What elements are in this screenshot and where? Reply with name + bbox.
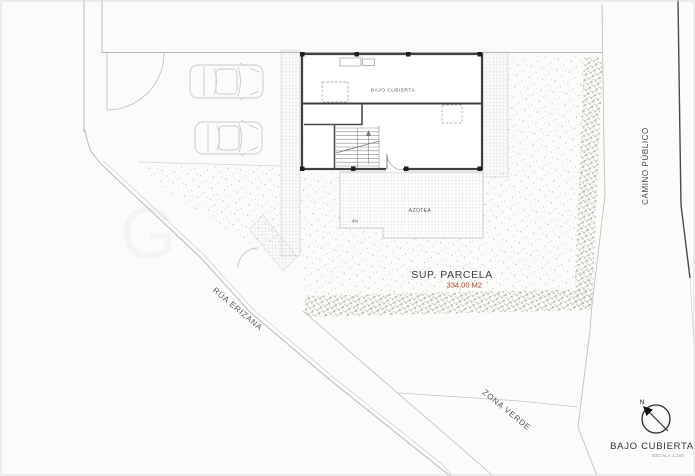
building: [300, 52, 482, 172]
terrace-deck: [340, 172, 483, 238]
site-plan-canvas: G: [0, 0, 695, 476]
street-label-camino-publico: CAMINO PÚBLICO: [641, 127, 650, 205]
slope-label: 4%: [352, 219, 358, 224]
compass-north-label: N: [640, 399, 645, 406]
walkway-west-strip: [281, 50, 300, 256]
drawing-title: BAJO CUBIERTA: [610, 441, 694, 452]
watermark: G: [120, 194, 176, 274]
terrace: [340, 172, 483, 238]
walkway-east-strip: [483, 52, 508, 177]
drawing-scale: ESCALA 1:100: [652, 453, 684, 459]
roof-fixture: [340, 58, 361, 66]
door-opening: [386, 166, 403, 172]
roof-fixture: [363, 59, 375, 66]
terrace-label: AZOTEA: [409, 208, 432, 214]
site-plan-svg: G: [0, 0, 695, 476]
parcel-surface-label: SUP. PARCELA: [411, 269, 493, 281]
building-label: BAJO CUBIERTA: [371, 88, 415, 94]
building-outer-wall: [302, 54, 482, 169]
parcel-area-value: 334,00 M2: [447, 281, 482, 290]
